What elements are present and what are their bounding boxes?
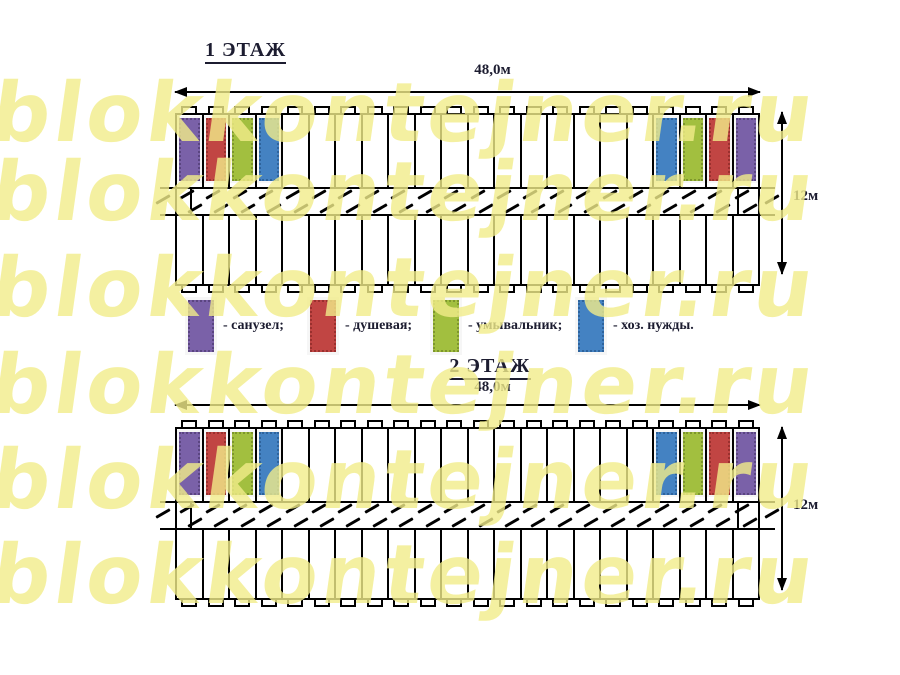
door-swing-mark xyxy=(549,503,564,514)
door-swing-mark xyxy=(259,503,274,514)
door-swing-mark xyxy=(470,503,485,514)
window xyxy=(393,106,409,115)
window xyxy=(287,420,303,429)
window xyxy=(287,598,303,607)
door-swing-mark xyxy=(372,517,387,528)
door-swing-mark xyxy=(628,503,643,514)
window xyxy=(552,106,568,115)
floor-1-building xyxy=(175,113,760,286)
window xyxy=(685,106,701,115)
entrance-door-mark xyxy=(155,194,170,205)
module-cell xyxy=(257,429,284,501)
module-cell xyxy=(575,216,602,284)
door-swing-mark xyxy=(655,189,670,200)
door-swing-mark xyxy=(285,189,300,200)
legend-item-utility: - хоз. нужды. xyxy=(578,300,694,352)
module-cell xyxy=(283,115,310,187)
module-cell xyxy=(257,216,284,284)
door-swing-mark xyxy=(689,517,704,528)
corridor-end-partition xyxy=(190,503,192,528)
window xyxy=(261,598,277,607)
door-swing-mark xyxy=(240,517,255,528)
module-cell xyxy=(522,530,549,598)
door-swing-mark xyxy=(179,503,194,514)
corridor-entrance-right xyxy=(760,501,775,530)
module-cell xyxy=(495,115,522,187)
window xyxy=(314,284,330,293)
module-cell xyxy=(363,115,390,187)
module-cell xyxy=(310,530,337,598)
window xyxy=(552,420,568,429)
door-swing-mark xyxy=(689,203,704,214)
entrance-door-mark xyxy=(764,508,779,519)
window xyxy=(499,598,515,607)
door-swing-mark xyxy=(364,503,379,514)
window xyxy=(393,598,409,607)
window xyxy=(685,598,701,607)
module-cell xyxy=(601,530,628,598)
module-cell xyxy=(283,429,310,501)
door-swing-mark xyxy=(319,203,334,214)
module-cell xyxy=(310,216,337,284)
module-cell xyxy=(522,115,549,187)
window xyxy=(181,106,197,115)
door-swing-mark xyxy=(372,203,387,214)
module-cell xyxy=(522,216,549,284)
floor-1-height-arrow xyxy=(781,112,783,274)
window xyxy=(738,284,754,293)
module-cell xyxy=(177,216,204,284)
door-swing-mark xyxy=(443,503,458,514)
window xyxy=(181,598,197,607)
module-cell xyxy=(469,530,496,598)
door-swing-mark xyxy=(391,503,406,514)
door-swing-mark xyxy=(636,517,651,528)
door-swing-mark xyxy=(267,517,282,528)
washbasin-room xyxy=(232,432,253,495)
module-cell xyxy=(204,429,231,501)
module-cell xyxy=(575,115,602,187)
toilet-room xyxy=(736,432,757,495)
door-swing-mark xyxy=(346,517,361,528)
door-swing-mark xyxy=(496,503,511,514)
door-swing-mark xyxy=(259,189,274,200)
door-swing-mark xyxy=(338,189,353,200)
window xyxy=(420,284,436,293)
module-cell xyxy=(548,216,575,284)
legend: - санузел; - душевая; - умывальник; - хо… xyxy=(0,300,900,356)
window xyxy=(446,284,462,293)
window xyxy=(632,420,648,429)
module-cell xyxy=(681,216,708,284)
floor-2-title: 2 ЭТАЖ xyxy=(400,356,580,380)
module-cell xyxy=(363,216,390,284)
door-swing-mark xyxy=(346,203,361,214)
module-cell xyxy=(363,530,390,598)
door-swing-mark xyxy=(364,189,379,200)
window xyxy=(261,106,277,115)
door-swing-mark xyxy=(575,189,590,200)
shower-room xyxy=(206,432,227,495)
window xyxy=(367,420,383,429)
door-swing-mark xyxy=(742,203,757,214)
door-swing-mark xyxy=(549,189,564,200)
window xyxy=(579,598,595,607)
module-cell xyxy=(601,429,628,501)
washbasin-color-swatch xyxy=(433,300,459,352)
module-cell xyxy=(707,216,734,284)
window xyxy=(208,284,224,293)
window xyxy=(234,284,250,293)
floor-1-corridor xyxy=(175,189,760,214)
module-cell xyxy=(442,115,469,187)
module-cell xyxy=(177,429,204,501)
door-swing-mark xyxy=(557,517,572,528)
door-swing-mark xyxy=(232,503,247,514)
window xyxy=(314,106,330,115)
module-cell xyxy=(283,530,310,598)
window xyxy=(658,106,674,115)
utility-color-swatch xyxy=(578,300,604,352)
door-swing-mark xyxy=(206,189,221,200)
module-cell xyxy=(548,429,575,501)
window xyxy=(605,598,621,607)
door-swing-mark xyxy=(311,189,326,200)
door-swing-mark xyxy=(610,517,625,528)
window xyxy=(685,420,701,429)
window xyxy=(208,420,224,429)
window xyxy=(473,420,489,429)
window xyxy=(393,284,409,293)
door-swing-mark xyxy=(311,503,326,514)
door-swing-mark xyxy=(636,203,651,214)
module-cell xyxy=(336,530,363,598)
door-swing-mark xyxy=(583,203,598,214)
module-cell xyxy=(734,115,759,187)
window xyxy=(446,598,462,607)
door-swing-mark xyxy=(443,189,458,200)
legend-label: - душевая; xyxy=(345,318,412,334)
window xyxy=(579,420,595,429)
legend-label: - умывальник; xyxy=(468,318,562,334)
floor-1-width-arrow xyxy=(175,91,760,93)
door-swing-mark xyxy=(425,203,440,214)
door-swing-mark xyxy=(285,503,300,514)
window xyxy=(579,106,595,115)
window xyxy=(208,106,224,115)
module-cell xyxy=(522,429,549,501)
door-swing-mark xyxy=(663,203,678,214)
door-swing-mark xyxy=(681,503,696,514)
window xyxy=(579,284,595,293)
module-cell xyxy=(469,216,496,284)
module-cell xyxy=(707,530,734,598)
door-swing-mark xyxy=(557,203,572,214)
door-swing-mark xyxy=(267,203,282,214)
module-cell xyxy=(495,216,522,284)
module-cell xyxy=(654,115,681,187)
window xyxy=(499,420,515,429)
utility-room xyxy=(656,118,677,181)
window xyxy=(367,284,383,293)
door-swing-mark xyxy=(663,517,678,528)
door-swing-mark xyxy=(655,503,670,514)
door-swing-mark xyxy=(478,517,493,528)
window xyxy=(499,284,515,293)
module-cell xyxy=(681,429,708,501)
door-swing-mark xyxy=(214,517,229,528)
door-swing-mark xyxy=(575,503,590,514)
door-swing-mark xyxy=(417,189,432,200)
door-swing-mark xyxy=(742,517,757,528)
module-cell xyxy=(230,530,257,598)
door-swing-mark xyxy=(602,189,617,200)
floor-2-width-arrow xyxy=(175,404,760,406)
shower-room xyxy=(709,118,730,181)
module-cell xyxy=(548,530,575,598)
legend-item-shower: - душевая; xyxy=(310,300,412,352)
toilet-room xyxy=(179,432,200,495)
module-cell xyxy=(575,429,602,501)
floor-2-bottom-row xyxy=(175,528,760,600)
window xyxy=(446,106,462,115)
utility-room xyxy=(259,432,280,495)
door-swing-mark xyxy=(478,203,493,214)
module-cell xyxy=(389,429,416,501)
shower-room xyxy=(206,118,227,181)
floor-1-bottom-row xyxy=(175,214,760,286)
legend-label: - хоз. нужды. xyxy=(613,318,694,334)
window xyxy=(367,598,383,607)
window xyxy=(473,284,489,293)
toilet-room xyxy=(179,118,200,181)
window xyxy=(420,106,436,115)
window xyxy=(552,284,568,293)
window xyxy=(738,420,754,429)
window xyxy=(711,420,727,429)
corridor-entrance-right xyxy=(760,187,775,216)
module-cell xyxy=(389,216,416,284)
floor-2-height-dimension: 12м xyxy=(793,497,818,514)
module-cell xyxy=(601,115,628,187)
door-swing-mark xyxy=(425,517,440,528)
module-cell xyxy=(204,216,231,284)
window xyxy=(473,106,489,115)
window xyxy=(261,420,277,429)
module-cell xyxy=(177,530,204,598)
door-swing-mark xyxy=(391,189,406,200)
door-swing-mark xyxy=(399,203,414,214)
legend-item-washbasin: - умывальник; xyxy=(433,300,562,352)
door-swing-mark xyxy=(319,517,334,528)
module-cell xyxy=(416,429,443,501)
door-swing-mark xyxy=(206,503,221,514)
module-cell xyxy=(469,115,496,187)
floor-1-height-dimension: 12м xyxy=(793,188,818,205)
window xyxy=(738,598,754,607)
module-cell xyxy=(336,115,363,187)
floor-plan-canvas: 1 ЭТАЖ 48,0м 12м - санузел; - душевая; -… xyxy=(0,0,900,675)
door-swing-mark xyxy=(293,517,308,528)
module-cell xyxy=(257,530,284,598)
window xyxy=(605,284,621,293)
window xyxy=(181,284,197,293)
window xyxy=(632,106,648,115)
window xyxy=(181,420,197,429)
door-swing-mark xyxy=(583,517,598,528)
corridor-end-partition xyxy=(190,189,192,214)
module-cell xyxy=(734,216,759,284)
module-cell xyxy=(681,115,708,187)
door-swing-mark xyxy=(451,517,466,528)
door-swing-mark xyxy=(715,517,730,528)
module-cell xyxy=(707,429,734,501)
window xyxy=(208,598,224,607)
shower-color-swatch xyxy=(310,300,336,352)
door-swing-mark xyxy=(715,203,730,214)
module-cell xyxy=(389,530,416,598)
door-swing-mark xyxy=(523,503,538,514)
module-cell xyxy=(575,530,602,598)
window xyxy=(605,106,621,115)
door-swing-mark xyxy=(707,189,722,200)
module-cell xyxy=(363,429,390,501)
window xyxy=(314,420,330,429)
module-cell xyxy=(230,429,257,501)
floor-2-top-row xyxy=(175,427,760,503)
door-swing-mark xyxy=(214,203,229,214)
module-cell xyxy=(469,429,496,501)
module-cell xyxy=(681,530,708,598)
window xyxy=(526,284,542,293)
window xyxy=(499,106,515,115)
legend-label: - санузел; xyxy=(223,318,284,334)
floor-1-title: 1 ЭТАЖ xyxy=(205,40,286,64)
window xyxy=(658,598,674,607)
window xyxy=(287,106,303,115)
module-cell xyxy=(654,530,681,598)
window xyxy=(446,420,462,429)
corridor-entrance-left xyxy=(160,501,175,530)
utility-room xyxy=(656,432,677,495)
module-cell xyxy=(628,115,655,187)
washbasin-room xyxy=(232,118,253,181)
entrance-door-mark xyxy=(764,194,779,205)
module-cell xyxy=(442,530,469,598)
module-cell xyxy=(310,115,337,187)
window xyxy=(711,106,727,115)
window xyxy=(234,106,250,115)
window xyxy=(632,598,648,607)
entrance-door-mark xyxy=(155,508,170,519)
corridor-end-partition xyxy=(737,189,739,214)
washbasin-room xyxy=(683,432,704,495)
window xyxy=(526,598,542,607)
door-swing-mark xyxy=(399,517,414,528)
window xyxy=(393,420,409,429)
window xyxy=(711,598,727,607)
corridor-end-partition xyxy=(737,503,739,528)
door-swing-mark xyxy=(504,203,519,214)
module-cell xyxy=(734,429,759,501)
window xyxy=(526,420,542,429)
module-cell xyxy=(389,115,416,187)
door-swing-mark xyxy=(293,203,308,214)
door-swing-mark xyxy=(232,189,247,200)
window xyxy=(261,284,277,293)
window xyxy=(340,106,356,115)
module-cell xyxy=(628,530,655,598)
floor-1-width-dimension: 48,0м xyxy=(200,62,785,79)
module-cell xyxy=(654,429,681,501)
door-swing-mark xyxy=(504,517,519,528)
floor-1-top-row xyxy=(175,113,760,189)
window xyxy=(552,598,568,607)
module-cell xyxy=(204,530,231,598)
window xyxy=(340,420,356,429)
window xyxy=(287,284,303,293)
door-swing-mark xyxy=(240,203,255,214)
door-swing-mark xyxy=(417,503,432,514)
module-cell xyxy=(495,429,522,501)
door-swing-mark xyxy=(707,503,722,514)
module-cell xyxy=(707,115,734,187)
floor-2-width-dimension: 48,0м xyxy=(200,379,785,396)
window xyxy=(367,106,383,115)
window xyxy=(340,284,356,293)
shower-room xyxy=(709,432,730,495)
module-cell xyxy=(230,216,257,284)
module-cell xyxy=(230,115,257,187)
floor-2-height-arrow xyxy=(781,427,783,590)
window xyxy=(420,420,436,429)
door-swing-mark xyxy=(681,189,696,200)
door-swing-mark xyxy=(628,189,643,200)
window xyxy=(632,284,648,293)
module-cell xyxy=(548,115,575,187)
window xyxy=(685,284,701,293)
door-swing-mark xyxy=(451,203,466,214)
window xyxy=(658,284,674,293)
module-cell xyxy=(442,429,469,501)
door-swing-mark xyxy=(531,517,546,528)
window xyxy=(473,598,489,607)
window xyxy=(420,598,436,607)
module-cell xyxy=(257,115,284,187)
window xyxy=(605,420,621,429)
module-cell xyxy=(654,216,681,284)
module-cell xyxy=(336,216,363,284)
window xyxy=(526,106,542,115)
door-swing-mark xyxy=(179,189,194,200)
module-cell xyxy=(177,115,204,187)
floor-2-building xyxy=(175,427,760,600)
module-cell xyxy=(495,530,522,598)
module-cell xyxy=(734,530,759,598)
window xyxy=(234,598,250,607)
toilet-room xyxy=(736,118,757,181)
door-swing-mark xyxy=(523,189,538,200)
door-swing-mark xyxy=(496,189,511,200)
door-swing-mark xyxy=(470,189,485,200)
utility-room xyxy=(259,118,280,181)
floor-2-corridor xyxy=(175,503,760,528)
module-cell xyxy=(416,216,443,284)
module-cell xyxy=(416,115,443,187)
window xyxy=(738,106,754,115)
module-cell xyxy=(310,429,337,501)
window xyxy=(314,598,330,607)
